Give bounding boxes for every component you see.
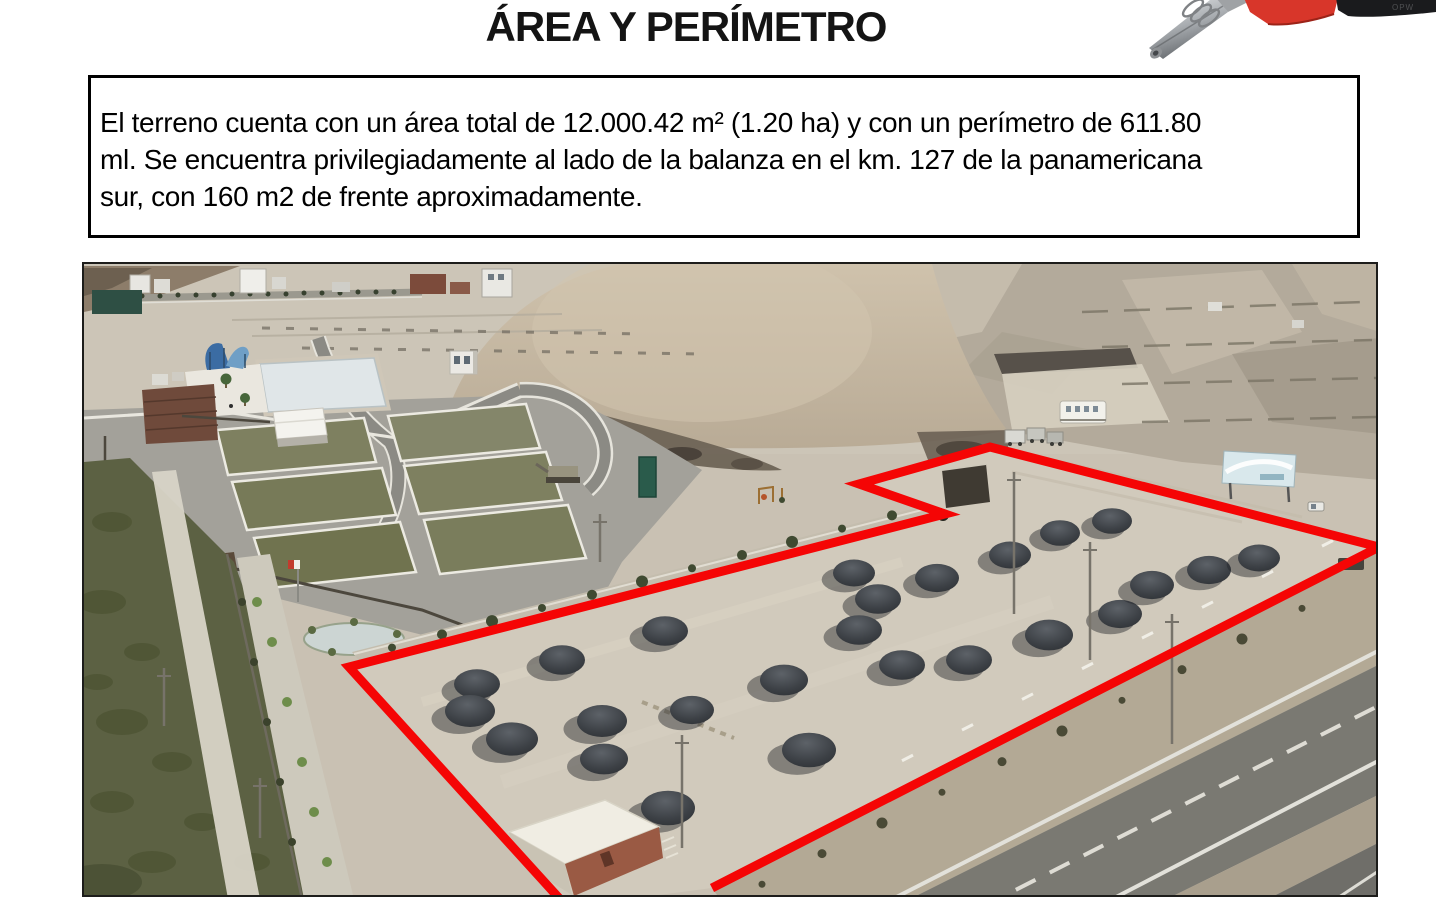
aerial-photo [82,262,1378,897]
guard-hut [942,464,990,508]
document-page: ÁREA Y PERÍMETRO OPW El [0,0,1436,907]
brick-compound [410,274,446,294]
nozzle-brand-text: OPW [1392,3,1414,12]
nozzle-black-handle [1336,0,1436,17]
white-trailer [1060,401,1106,423]
info-line-2: ml. Se encuentra privilegiadamente al la… [100,141,1349,178]
info-line-3: sur, con 160 m2 de frente aproximadament… [100,178,1349,215]
aerial-photo-canvas [84,264,1376,895]
nozzle-red-body [1244,0,1338,25]
teal-fence [92,290,142,314]
white-car [1308,502,1324,511]
warehouse-building [273,408,328,447]
info-box: El terreno cuenta con un área total de 1… [88,75,1360,238]
fuel-nozzle: OPW [1148,0,1436,61]
white-house [450,351,477,374]
pond [260,358,386,412]
info-line-1: El terreno cuenta con un área total de 1… [100,104,1349,141]
fuel-nozzle-image: OPW [1120,0,1436,80]
green-container [639,457,656,497]
